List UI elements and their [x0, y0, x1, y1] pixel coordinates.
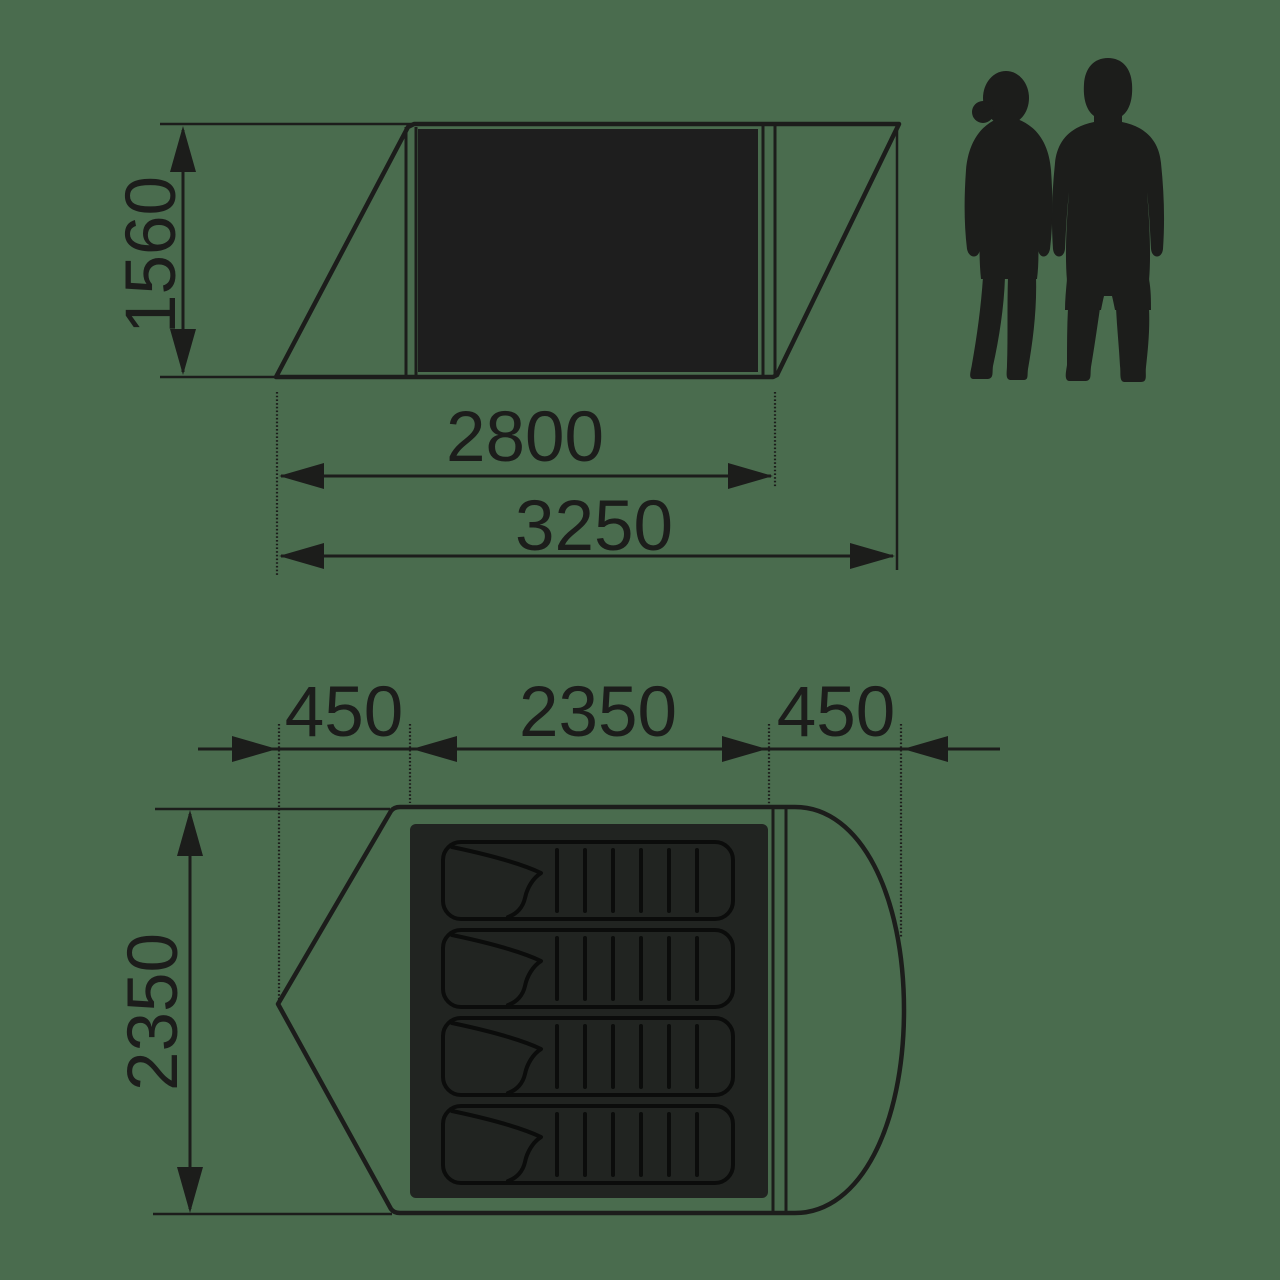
- top-view: 450 2350 450 2350: [114, 673, 1000, 1214]
- dimension-width-2350: 2350: [114, 810, 203, 1213]
- scale-figures: [965, 58, 1164, 382]
- arrow-right: [722, 736, 767, 762]
- dimension-label-height: 1560: [112, 176, 191, 334]
- arrow-down: [170, 329, 196, 375]
- arrow-left: [279, 543, 324, 569]
- arrow-right: [850, 543, 895, 569]
- dimension-label-inner-length: 2350: [519, 673, 677, 752]
- dimension-label-left-porch: 450: [285, 673, 403, 752]
- woman-silhouette: [965, 71, 1053, 380]
- tent-inner-cabin-panel: [418, 129, 758, 372]
- dimension-label-total-width: 3250: [515, 487, 673, 566]
- dimension-height-1560: 1560: [112, 126, 196, 375]
- tent-dimensions-diagram: 1560 2800 3250: [0, 0, 1280, 1280]
- arrow-up: [177, 810, 203, 856]
- arrow-right-into-left-tick: [232, 736, 277, 762]
- dimension-label-right-porch: 450: [777, 673, 895, 752]
- tent-floor: [410, 824, 768, 1198]
- side-view: 1560 2800 3250: [112, 124, 899, 577]
- dimension-inner-width-2800: 2800: [279, 398, 773, 489]
- dimension-total-width-3250: 3250: [279, 487, 895, 569]
- tent-inner-wall-lines: [773, 807, 786, 1213]
- dimension-label-inner-width: 2800: [446, 398, 604, 477]
- arrow-left: [279, 463, 324, 489]
- arrow-left-into-right-tick: [903, 736, 948, 762]
- man-silhouette: [1052, 58, 1164, 382]
- arrow-left: [412, 736, 457, 762]
- arrow-down: [177, 1167, 203, 1213]
- dimension-chain-horizontal: 450 2350 450: [198, 673, 1000, 762]
- arrow-up: [170, 126, 196, 172]
- arrow-right: [728, 463, 773, 489]
- dimension-label-width: 2350: [114, 933, 193, 1091]
